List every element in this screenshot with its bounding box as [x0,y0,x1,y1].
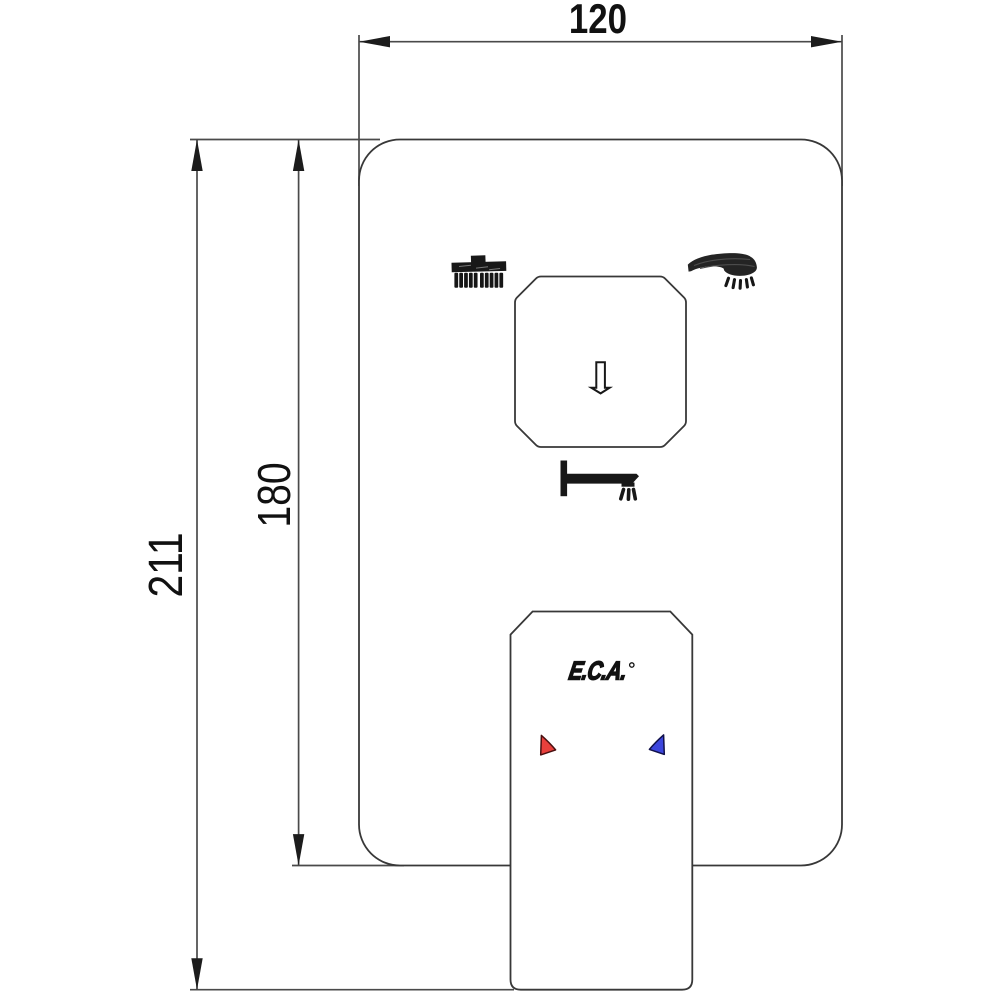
svg-text:180: 180 [249,462,301,527]
svg-text:E.C.A.: E.C.A. [567,656,629,685]
svg-text:211: 211 [140,532,193,597]
svg-text:120: 120 [569,0,627,43]
